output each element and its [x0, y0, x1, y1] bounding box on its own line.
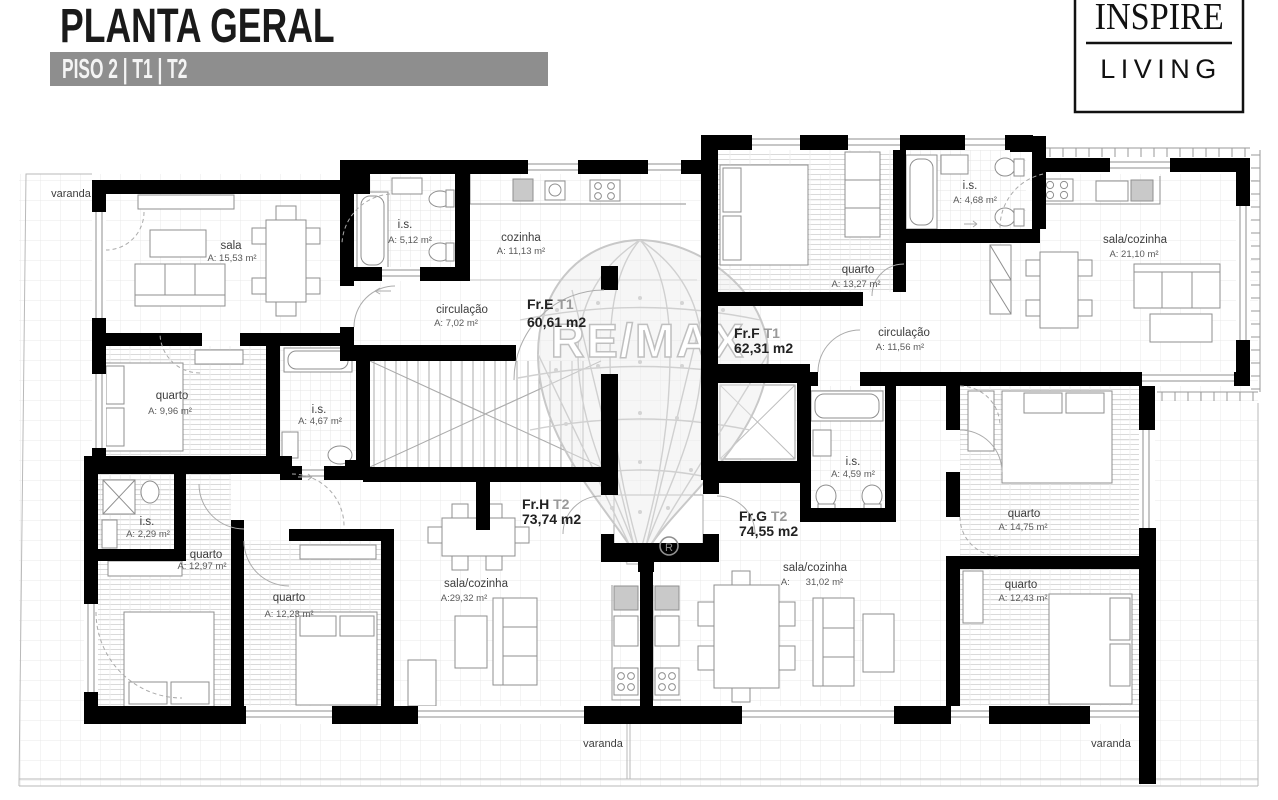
svg-text:sala: sala	[220, 240, 242, 252]
svg-text:60,61 m2: 60,61 m2	[527, 314, 586, 330]
svg-text:quarto: quarto	[1008, 508, 1041, 520]
svg-text:A: 12,23 m²: A: 12,23 m²	[264, 609, 313, 620]
svg-text:Fr.H T2: Fr.H T2	[522, 496, 570, 512]
svg-text:74,55 m2: 74,55 m2	[739, 523, 798, 539]
svg-text:i.s.: i.s.	[312, 404, 327, 416]
svg-text:LIVING: LIVING	[1100, 54, 1222, 84]
svg-text:Fr.G T2: Fr.G T2	[739, 508, 787, 524]
svg-text:PISO 2 | T1 | T2: PISO 2 | T1 | T2	[62, 53, 187, 84]
svg-text:varanda: varanda	[51, 188, 92, 200]
svg-text:quarto: quarto	[273, 592, 306, 604]
svg-text:A: 31,02 m²: A: 31,02 m²	[781, 577, 843, 588]
svg-text:A: 5,12 m²: A: 5,12 m²	[388, 235, 432, 246]
svg-text:sala/cozinha: sala/cozinha	[783, 562, 848, 574]
svg-text:i.s.: i.s.	[398, 219, 413, 231]
svg-text:sala/cozinha: sala/cozinha	[1103, 234, 1168, 246]
svg-text:A: 11,56 m²: A: 11,56 m²	[876, 342, 924, 353]
svg-text:i.s.: i.s.	[140, 516, 155, 528]
svg-text:A: 15,53 m²: A: 15,53 m²	[207, 253, 256, 264]
svg-text:73,74 m2: 73,74 m2	[522, 511, 581, 527]
svg-text:PLANTA GERAL: PLANTA GERAL	[60, 0, 335, 52]
svg-text:varanda: varanda	[583, 738, 624, 750]
svg-text:sala/cozinha: sala/cozinha	[444, 578, 509, 590]
svg-text:circulação: circulação	[878, 327, 930, 339]
svg-text:A: 12,43 m²: A: 12,43 m²	[998, 593, 1047, 604]
svg-text:A: 9,96 m²: A: 9,96 m²	[148, 406, 192, 417]
svg-text:varanda: varanda	[1091, 738, 1132, 750]
svg-text:circulação: circulação	[436, 304, 488, 316]
svg-text:A: 13,27 m²: A: 13,27 m²	[831, 279, 880, 290]
svg-text:A: 2,29 m²: A: 2,29 m²	[126, 529, 170, 540]
svg-text:A: 4,68 m²: A: 4,68 m²	[953, 195, 997, 206]
svg-text:Fr.F T1: Fr.F T1	[734, 325, 780, 341]
svg-text:quarto: quarto	[1005, 579, 1038, 591]
svg-text:R: R	[665, 542, 673, 554]
svg-text:INSPIRE: INSPIRE	[1095, 0, 1224, 37]
svg-text:Fr.E T1: Fr.E T1	[527, 296, 574, 312]
svg-text:i.s.: i.s.	[963, 180, 978, 192]
svg-text:quarto: quarto	[190, 549, 223, 561]
svg-text:cozinha: cozinha	[501, 232, 541, 244]
svg-text:i.s.: i.s.	[846, 456, 861, 468]
svg-text:A: 14,75 m²: A: 14,75 m²	[998, 522, 1047, 533]
svg-text:A: 12,97 m²: A: 12,97 m²	[177, 561, 226, 572]
svg-text:A: 7,02 m²: A: 7,02 m²	[434, 318, 478, 329]
svg-text:62,31 m2: 62,31 m2	[734, 340, 793, 356]
svg-text:A: 11,13 m²: A: 11,13 m²	[497, 246, 545, 257]
svg-text:quarto: quarto	[156, 390, 189, 402]
svg-text:A: 21,10 m²: A: 21,10 m²	[1109, 249, 1158, 260]
svg-text:A:29,32 m²: A:29,32 m²	[441, 593, 487, 604]
svg-text:A: 4,59 m²: A: 4,59 m²	[831, 469, 875, 480]
svg-text:A: 4,67 m²: A: 4,67 m²	[298, 416, 342, 427]
svg-text:quarto: quarto	[842, 264, 875, 276]
